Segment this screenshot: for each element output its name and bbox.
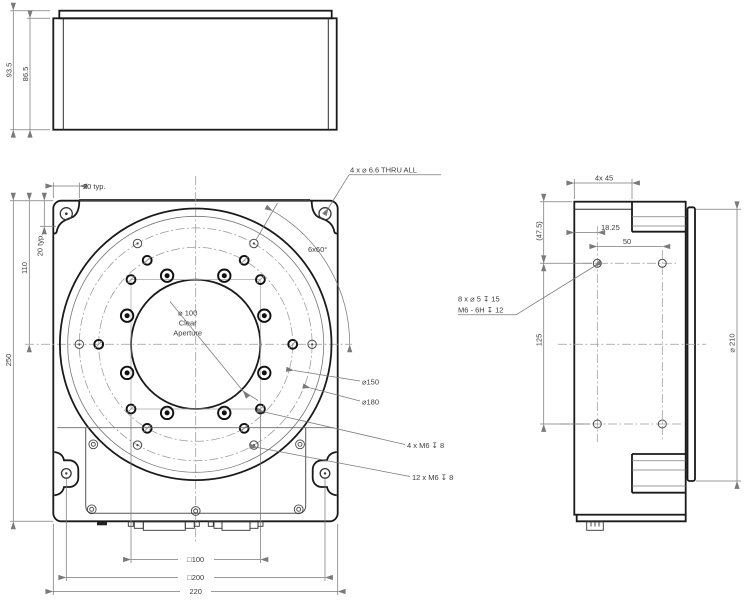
side-dim-47-5-label: (47.5) [535,221,544,241]
plan-dim-corner-offset-v-label: 20 typ. [36,234,45,257]
bottom-connectors [97,522,263,531]
plan-dim-110: 110 [10,201,53,345]
plan-dim-110-label: 110 [20,262,29,274]
callout-bc150-label: ⌀150 [362,378,379,387]
front-dim-body-height: 86.5 [21,18,50,129]
plan-dim-220-label: 220 [189,587,202,596]
side-dim-18-25-label: 18.25 [601,223,620,232]
side-dim-125-label: 125 [535,334,544,347]
callout-m6-12x-label: 12 x M6 ↧ 8 [412,473,453,482]
side-dim-50-label: 50 [623,237,631,246]
front-dim-body-height-label: 86.5 [21,67,30,82]
ground-lug [97,522,107,526]
plan-dim-corner-offset-h-label: 20 typ. [83,182,106,191]
side-dim-210-label: ⌀ 210 [728,333,737,352]
corner-lobe-top-right [312,201,338,234]
aperture-label-aperture: Aperture [173,329,202,338]
callout-m6-4x: 4 x M6 ↧ 8 [265,412,445,450]
side-dim-50: 50 [597,237,662,247]
callout-m6-12x: 12 x M6 ↧ 8 [258,448,454,483]
side-dim-top-step-label: 4x 45 [595,174,613,183]
side-dim-top-step: 4x 45 [574,174,632,200]
front-platform-plate [59,11,331,19]
side-body [574,202,685,515]
front-view: 93.5 86.5 [5,11,337,130]
aperture-label-dia: ⌀ 100 [178,309,197,318]
callout-side-holes-line2: M6 - 6H ↧ 12 [458,306,503,315]
corner-lobe-top-left [53,201,79,234]
side-bottom-block [632,454,686,493]
plan-dim-square100-label: □100 [187,555,204,564]
side-face-holes [593,259,666,428]
side-top-block [632,202,686,232]
side-view: 4x 45 (47.5) 125 18.25 50 8 x ⌀ 5 ↧ 15 M… [458,174,741,531]
rotation-stage-drawing: 93.5 86.5 [0,0,750,606]
plan-dim-corner-offset-h: 20 typ. [53,182,105,198]
technical-drawing-page: 93.5 86.5 [0,0,750,606]
front-dim-total-height-label: 93.5 [5,63,14,78]
plan-dim-250: 250 [4,201,53,522]
plan-view: 20 typ. 20 typ. 110 250 4 x ⌀ 6.6 THRU A… [4,166,453,597]
plan-dim-square200-label: □200 [187,573,204,582]
side-base-strip [577,515,686,522]
side-connector [587,522,604,531]
dsub-connector-1 [128,522,199,531]
callout-m6-4x-label: 4 x M6 ↧ 8 [407,441,444,450]
callout-corner-holes: 4 x ⌀ 6.6 THRU ALL [329,166,442,209]
side-dim-210: ⌀ 210 [696,209,741,481]
callout-corner-holes-label: 4 x ⌀ 6.6 THRU ALL [350,166,417,175]
plan-dim-250-label: 250 [4,354,13,367]
callout-bc180-label: ⌀180 [362,398,379,407]
front-body [53,18,336,129]
side-dim-125: 125 [535,263,591,424]
callout-side-holes-line1: 8 x ⌀ 5 ↧ 15 [458,295,500,304]
dim-hole-angle-label: 6x60° [308,245,327,254]
dsub-connector-2 [208,522,263,531]
aperture-label-clear: Clear [179,319,197,328]
